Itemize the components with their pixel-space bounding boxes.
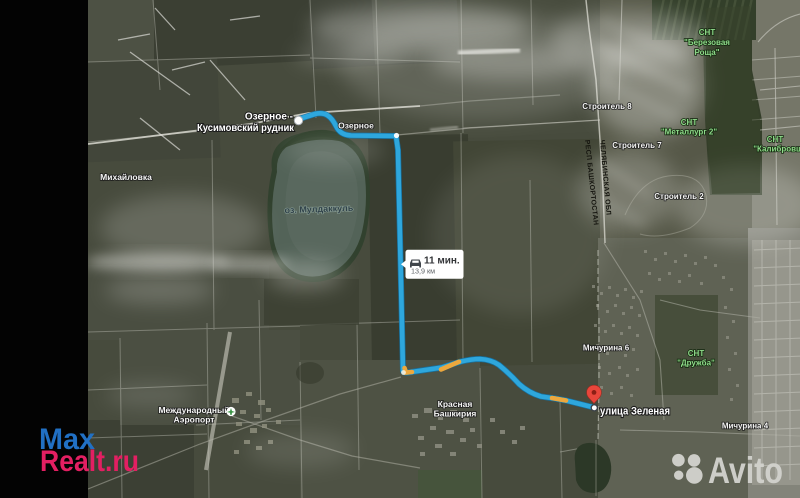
svg-text:СНТ: СНТ <box>688 349 705 358</box>
svg-text:Озерное: Озерное <box>338 121 374 131</box>
svg-text:"Березовая: "Березовая <box>684 38 730 47</box>
svg-text:Роща": Роща" <box>694 48 719 57</box>
svg-text:Башкирия: Башкирия <box>434 409 477 419</box>
svg-text:Строитель 2: Строитель 2 <box>654 192 704 201</box>
svg-text:Строитель 7: Строитель 7 <box>612 141 662 150</box>
svg-text:Realt.ru: Realt.ru <box>40 445 139 478</box>
svg-text:"Металлург 2": "Металлург 2" <box>661 128 717 137</box>
svg-text:11 мин.: 11 мин. <box>424 256 460 267</box>
svg-text:Аэропорт: Аэропорт <box>174 415 215 425</box>
svg-text:СНТ: СНТ <box>699 28 716 37</box>
svg-text:Кусимовский рудник: Кусимовский рудник <box>197 123 295 134</box>
svg-text:Avito: Avito <box>708 450 783 491</box>
svg-text:13,9 км: 13,9 км <box>411 267 435 276</box>
svg-text:"Калибровщ: "Калибровщ <box>753 145 800 154</box>
svg-text:СНТ: СНТ <box>681 118 698 127</box>
svg-text:"Дружба": "Дружба" <box>677 359 715 368</box>
svg-text:Мичурина 6: Мичурина 6 <box>583 344 630 353</box>
svg-text:Международный: Международный <box>158 405 229 415</box>
svg-text:СНТ: СНТ <box>767 135 784 144</box>
svg-text:Озерное -: Озерное - <box>245 112 293 123</box>
svg-text:Мичурина 4: Мичурина 4 <box>722 422 769 431</box>
svg-text:Строитель 8: Строитель 8 <box>582 102 632 111</box>
svg-text:улица Зеленая: улица Зеленая <box>600 406 670 418</box>
svg-text:Красная: Красная <box>438 399 473 409</box>
svg-text:Михайловка: Михайловка <box>100 172 152 182</box>
